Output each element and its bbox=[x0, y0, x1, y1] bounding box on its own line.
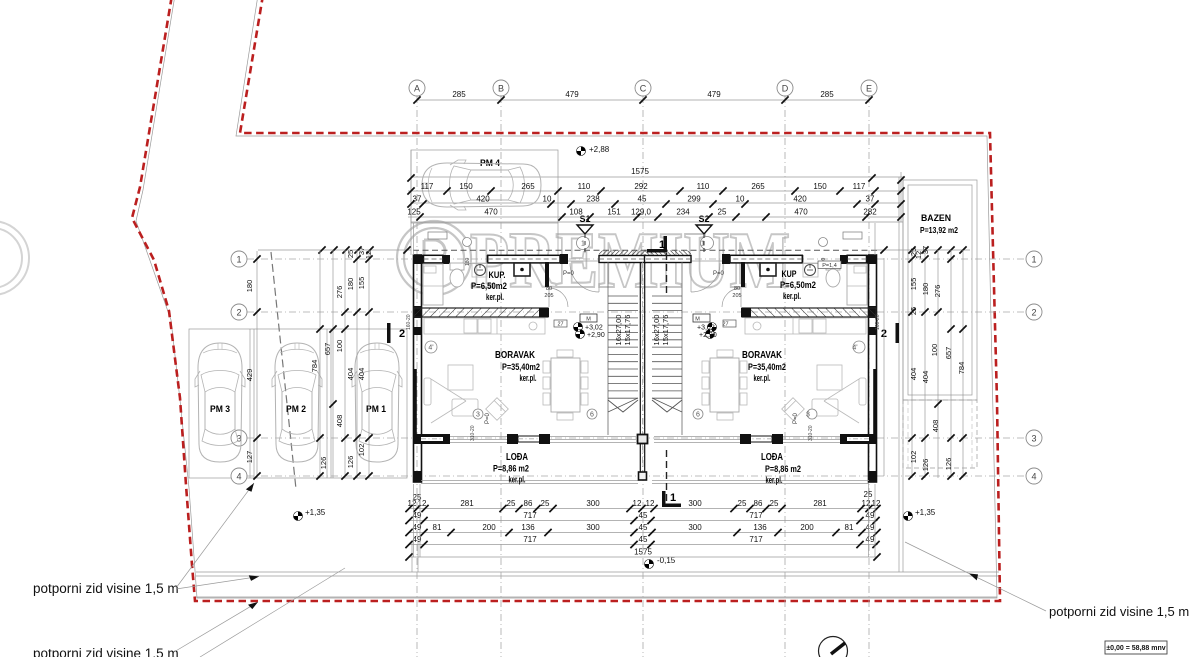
svg-text:3: 3 bbox=[476, 412, 480, 419]
svg-text:B: B bbox=[498, 84, 504, 94]
svg-text:+2,90: +2,90 bbox=[587, 332, 605, 339]
svg-text:100: 100 bbox=[335, 340, 344, 353]
svg-text:25: 25 bbox=[507, 499, 516, 508]
svg-text:4': 4' bbox=[428, 345, 433, 352]
svg-text:285: 285 bbox=[452, 90, 466, 99]
svg-text:37: 37 bbox=[866, 195, 875, 204]
svg-text:1: 1 bbox=[236, 255, 241, 265]
svg-text:2: 2 bbox=[236, 308, 241, 318]
svg-text:80: 80 bbox=[546, 286, 552, 292]
svg-text:420: 420 bbox=[793, 195, 807, 204]
svg-text:PM 3: PM 3 bbox=[210, 404, 230, 415]
svg-text:1: 1 bbox=[659, 239, 665, 251]
svg-text:A: A bbox=[414, 84, 420, 94]
svg-text:784: 784 bbox=[310, 360, 319, 373]
svg-text:784: 784 bbox=[957, 362, 966, 375]
svg-text:LOĐA: LOĐA bbox=[506, 452, 528, 463]
svg-text:+1,35: +1,35 bbox=[305, 508, 326, 517]
svg-text:479: 479 bbox=[565, 90, 579, 99]
svg-text:12: 12 bbox=[364, 251, 373, 259]
svg-text:P=35,40m2: P=35,40m2 bbox=[502, 362, 540, 373]
svg-text:4: 4 bbox=[236, 472, 241, 482]
svg-text:129,0: 129,0 bbox=[631, 208, 652, 217]
svg-text:ker.pl.: ker.pl. bbox=[520, 373, 537, 384]
svg-text:ker.pl.: ker.pl. bbox=[783, 291, 801, 301]
svg-text:205: 205 bbox=[732, 293, 741, 299]
svg-text:12: 12 bbox=[646, 499, 655, 508]
svg-text:P=0: P=0 bbox=[713, 271, 725, 277]
svg-text:6: 6 bbox=[590, 412, 594, 419]
svg-text:110: 110 bbox=[697, 182, 710, 191]
svg-text:25: 25 bbox=[738, 499, 747, 508]
svg-text:408: 408 bbox=[335, 415, 344, 428]
svg-text:10: 10 bbox=[736, 195, 745, 204]
svg-text:86: 86 bbox=[754, 499, 763, 508]
svg-text:E: E bbox=[866, 84, 872, 94]
svg-text:110: 110 bbox=[578, 182, 591, 191]
svg-text:108: 108 bbox=[569, 208, 583, 217]
svg-text:300: 300 bbox=[688, 523, 702, 532]
svg-text:4: 4 bbox=[1031, 472, 1036, 482]
svg-text:+2,90: +2,90 bbox=[699, 332, 717, 339]
svg-text:49: 49 bbox=[413, 535, 422, 544]
svg-text:160-20: 160-20 bbox=[406, 314, 412, 330]
svg-text:102: 102 bbox=[909, 451, 918, 464]
svg-text:234: 234 bbox=[676, 208, 690, 217]
svg-text:M: M bbox=[586, 317, 591, 323]
svg-text:717: 717 bbox=[523, 535, 537, 544]
svg-text:81: 81 bbox=[433, 523, 442, 532]
svg-text:429: 429 bbox=[245, 369, 254, 382]
svg-text:281: 281 bbox=[460, 499, 474, 508]
svg-text:310-20: 310-20 bbox=[470, 425, 476, 441]
svg-text:49: 49 bbox=[413, 523, 422, 532]
svg-text:276: 276 bbox=[933, 285, 942, 298]
svg-text:45: 45 bbox=[639, 535, 648, 544]
svg-text:2: 2 bbox=[1031, 308, 1036, 318]
svg-text:C: C bbox=[640, 84, 647, 94]
svg-text:117: 117 bbox=[421, 182, 434, 191]
svg-text:4': 4' bbox=[852, 345, 857, 352]
svg-text:404: 404 bbox=[357, 368, 366, 381]
svg-text:155: 155 bbox=[909, 278, 918, 291]
svg-text:ker.pl.: ker.pl. bbox=[486, 292, 504, 302]
svg-text:126: 126 bbox=[346, 456, 355, 469]
svg-text:49: 49 bbox=[866, 511, 875, 520]
svg-text:45: 45 bbox=[638, 195, 647, 204]
svg-text:1: 1 bbox=[581, 241, 585, 248]
svg-text:81: 81 bbox=[845, 523, 854, 532]
svg-text:BORAVAK: BORAVAK bbox=[495, 349, 535, 361]
svg-text:P=8,86 m2: P=8,86 m2 bbox=[765, 464, 801, 475]
svg-text:276: 276 bbox=[335, 286, 344, 299]
svg-text:717: 717 bbox=[523, 511, 537, 520]
svg-text:KUP.: KUP. bbox=[489, 270, 506, 281]
svg-text:±0,00 = 58,88 mnv: ±0,00 = 58,88 mnv bbox=[1106, 645, 1165, 652]
svg-text:300: 300 bbox=[586, 499, 600, 508]
svg-text:P=13,92 m2: P=13,92 m2 bbox=[920, 225, 958, 235]
svg-text:49: 49 bbox=[413, 511, 422, 520]
svg-text:P=0: P=0 bbox=[563, 271, 575, 277]
svg-text:238: 238 bbox=[586, 195, 600, 204]
svg-text:117: 117 bbox=[853, 182, 866, 191]
svg-text:310-20: 310-20 bbox=[808, 425, 814, 441]
svg-text:125: 125 bbox=[407, 208, 421, 217]
svg-text:P=6,50m2: P=6,50m2 bbox=[780, 280, 816, 290]
svg-text:281: 281 bbox=[813, 499, 827, 508]
svg-text:282: 282 bbox=[863, 208, 877, 217]
svg-text:126: 126 bbox=[319, 457, 328, 470]
svg-text:180: 180 bbox=[346, 278, 355, 291]
svg-text:717: 717 bbox=[749, 511, 763, 520]
svg-text:657: 657 bbox=[323, 343, 332, 356]
svg-text:12: 12 bbox=[633, 499, 642, 508]
svg-text:180: 180 bbox=[921, 283, 930, 296]
svg-text:ker.pl.: ker.pl. bbox=[766, 475, 783, 486]
svg-text:+1,35: +1,35 bbox=[915, 508, 936, 517]
svg-text:+3,02: +3,02 bbox=[697, 325, 715, 332]
svg-text:PM 2: PM 2 bbox=[286, 404, 306, 415]
svg-text:25: 25 bbox=[909, 307, 918, 315]
svg-text:3: 3 bbox=[806, 412, 810, 419]
svg-text:265: 265 bbox=[751, 182, 765, 191]
svg-text:D: D bbox=[782, 84, 789, 94]
svg-text:479: 479 bbox=[707, 90, 721, 99]
svg-text:P=8,86 m2: P=8,86 m2 bbox=[493, 464, 529, 475]
svg-text:BORAVAK: BORAVAK bbox=[742, 349, 782, 361]
svg-text:49: 49 bbox=[866, 535, 875, 544]
svg-text:25: 25 bbox=[718, 208, 727, 217]
svg-text:potporni zid visine 1,5 m: potporni zid visine 1,5 m bbox=[33, 646, 179, 657]
svg-text:45: 45 bbox=[639, 511, 648, 520]
svg-text:45: 45 bbox=[639, 523, 648, 532]
svg-text:P=0: P=0 bbox=[793, 412, 799, 424]
svg-text:ker.pl.: ker.pl. bbox=[509, 475, 526, 486]
svg-text:27: 27 bbox=[722, 322, 728, 328]
svg-text:404: 404 bbox=[909, 368, 918, 381]
svg-text:404: 404 bbox=[346, 368, 355, 381]
svg-text:27: 27 bbox=[557, 322, 563, 328]
svg-text:657: 657 bbox=[944, 347, 953, 360]
svg-text:P=1,4: P=1,4 bbox=[822, 263, 837, 269]
svg-text:KUP: KUP bbox=[782, 269, 797, 280]
svg-text:12: 12 bbox=[914, 251, 923, 259]
svg-text:300: 300 bbox=[586, 523, 600, 532]
svg-text:292: 292 bbox=[634, 182, 648, 191]
svg-text:717: 717 bbox=[749, 535, 763, 544]
svg-text:P=6,50m2: P=6,50m2 bbox=[471, 281, 507, 291]
svg-text:100: 100 bbox=[930, 344, 939, 357]
svg-text:15x17,76: 15x17,76 bbox=[661, 315, 670, 346]
svg-text:16x27,00: 16x27,00 bbox=[614, 315, 623, 346]
svg-text:126: 126 bbox=[921, 459, 930, 472]
svg-text:16x27,00: 16x27,00 bbox=[652, 315, 661, 346]
svg-text:300: 300 bbox=[688, 499, 702, 508]
svg-text:155: 155 bbox=[357, 277, 366, 290]
svg-text:470: 470 bbox=[794, 208, 808, 217]
svg-text:P=35,40m2: P=35,40m2 bbox=[748, 362, 786, 373]
svg-text:470: 470 bbox=[484, 208, 498, 217]
svg-text:ker.pl.: ker.pl. bbox=[754, 373, 771, 384]
svg-text:potporni zid visine 1,5 m: potporni zid visine 1,5 m bbox=[33, 581, 179, 596]
svg-text:150: 150 bbox=[459, 182, 473, 191]
svg-text:1: 1 bbox=[1031, 255, 1036, 265]
svg-text:404: 404 bbox=[921, 371, 930, 384]
svg-text:25: 25 bbox=[541, 499, 550, 508]
svg-text:M: M bbox=[695, 317, 700, 323]
svg-text:1: 1 bbox=[670, 492, 676, 504]
svg-text:299: 299 bbox=[687, 195, 701, 204]
svg-text:1575: 1575 bbox=[631, 167, 649, 176]
svg-text:12: 12 bbox=[408, 499, 417, 508]
svg-text:102: 102 bbox=[357, 444, 366, 457]
svg-text:25: 25 bbox=[770, 499, 779, 508]
svg-text:151: 151 bbox=[607, 208, 621, 217]
svg-text:+2,88: +2,88 bbox=[589, 145, 610, 154]
svg-text:potporni zid visine 1,5 m: potporni zid visine 1,5 m bbox=[1049, 604, 1189, 619]
svg-text:205: 205 bbox=[544, 293, 553, 299]
svg-text:420: 420 bbox=[476, 195, 490, 204]
svg-text:265: 265 bbox=[521, 182, 535, 191]
svg-text:126: 126 bbox=[944, 458, 953, 471]
svg-text:150: 150 bbox=[813, 182, 827, 191]
svg-text:P=0: P=0 bbox=[485, 412, 491, 424]
svg-text:2: 2 bbox=[399, 328, 405, 340]
svg-text:408: 408 bbox=[931, 420, 940, 433]
svg-text:285: 285 bbox=[820, 90, 834, 99]
svg-text:200: 200 bbox=[800, 523, 814, 532]
svg-text:136: 136 bbox=[521, 523, 535, 532]
svg-text:25: 25 bbox=[346, 250, 355, 258]
svg-text:86: 86 bbox=[524, 499, 533, 508]
svg-text:BAZEN: BAZEN bbox=[921, 213, 951, 224]
svg-text:127: 127 bbox=[245, 451, 254, 464]
svg-text:1575: 1575 bbox=[634, 548, 652, 557]
svg-text:49: 49 bbox=[866, 523, 875, 532]
svg-text:LOĐA: LOĐA bbox=[761, 452, 783, 463]
svg-text:15x17,76: 15x17,76 bbox=[623, 315, 632, 346]
svg-text:6: 6 bbox=[696, 412, 700, 419]
svg-text:3: 3 bbox=[1031, 434, 1036, 444]
svg-text:200: 200 bbox=[482, 523, 496, 532]
svg-text:80: 80 bbox=[734, 286, 740, 292]
svg-text:136: 136 bbox=[753, 523, 767, 532]
svg-text:180: 180 bbox=[245, 280, 254, 293]
svg-text:10: 10 bbox=[543, 195, 552, 204]
svg-text:+3,02: +3,02 bbox=[585, 325, 603, 332]
